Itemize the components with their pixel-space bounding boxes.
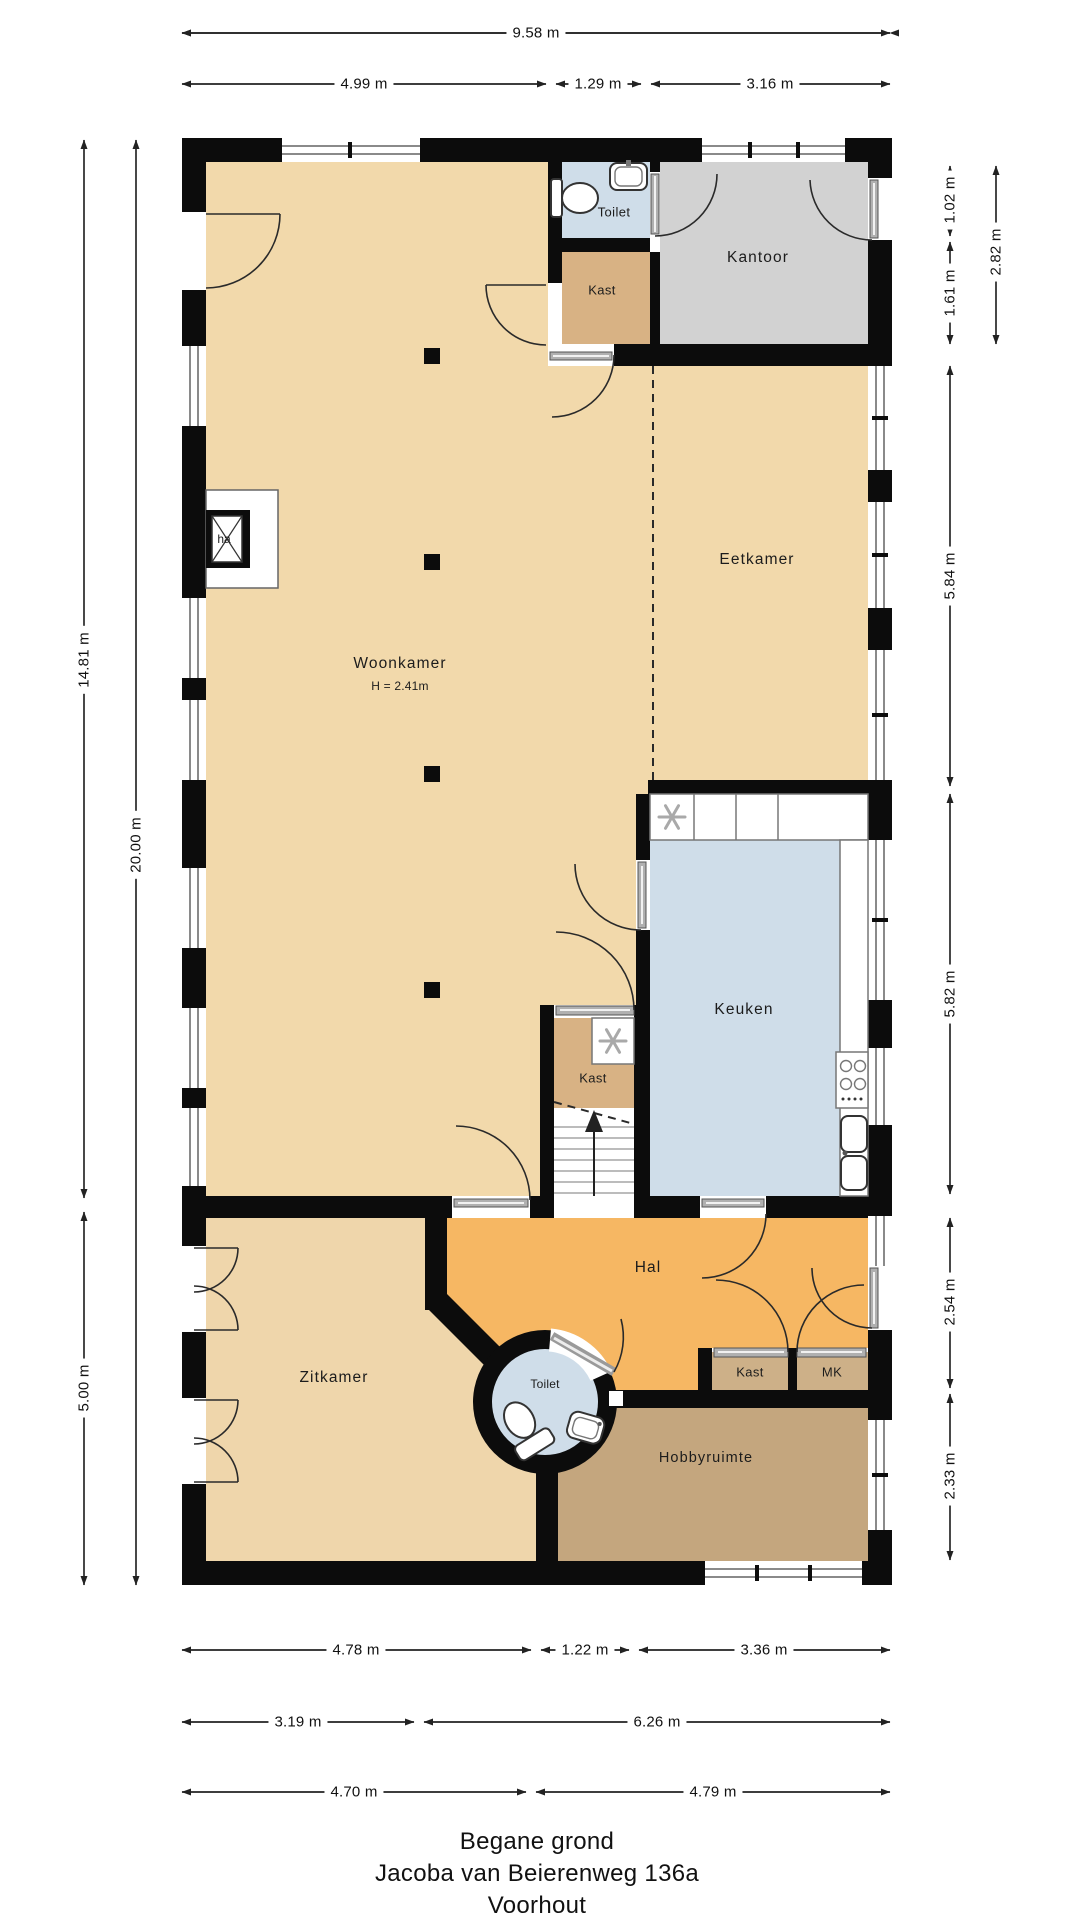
room-label-toilet-top: Toilet bbox=[598, 205, 631, 220]
floorplan-page: Toilet Kast Kantoor Eetkamer Woonkamer H… bbox=[0, 0, 1080, 1920]
window bbox=[184, 598, 204, 678]
window bbox=[184, 346, 204, 426]
dim-right-total-top: 2.82 m bbox=[988, 222, 1005, 281]
window bbox=[282, 140, 420, 160]
window bbox=[870, 502, 890, 608]
window bbox=[702, 140, 845, 160]
dim-bottom-r1-c: 3.36 m bbox=[734, 1642, 793, 1659]
room-label-mk: MK bbox=[822, 1365, 842, 1380]
dim-right-e: 2.54 m bbox=[942, 1272, 959, 1331]
dim-left-total: 20.00 m bbox=[128, 811, 145, 879]
dim-top-c: 3.16 m bbox=[740, 76, 799, 93]
room-label-keuken: Keuken bbox=[714, 1001, 773, 1019]
fireplace-label: ha bbox=[217, 532, 230, 546]
room-label-eetkamer: Eetkamer bbox=[719, 551, 794, 569]
dim-bottom-r3-a: 4.70 m bbox=[324, 1784, 383, 1801]
dim-right-b: 1.61 m bbox=[942, 263, 959, 322]
window bbox=[870, 1048, 890, 1125]
window bbox=[870, 1420, 890, 1530]
dim-right-d: 5.82 m bbox=[942, 964, 959, 1023]
column-post bbox=[424, 766, 440, 782]
dim-right-a: 1.02 m bbox=[942, 170, 959, 229]
window bbox=[705, 1563, 862, 1583]
dim-left-a: 14.81 m bbox=[76, 626, 93, 694]
dim-left-b: 5.00 m bbox=[76, 1358, 93, 1417]
window bbox=[184, 700, 204, 780]
window bbox=[870, 840, 890, 1000]
window bbox=[870, 1216, 890, 1266]
window bbox=[184, 868, 204, 948]
window bbox=[184, 1008, 204, 1088]
dim-bottom-r1-a: 4.78 m bbox=[326, 1642, 385, 1659]
title-address: Jacoba van Beierenweg 136a bbox=[137, 1858, 937, 1890]
dim-right-c: 5.84 m bbox=[942, 546, 959, 605]
freezer-box bbox=[592, 1018, 634, 1064]
dim-bottom-r3-b: 4.79 m bbox=[683, 1784, 742, 1801]
room-label-woonkamer: Woonkamer bbox=[353, 655, 446, 673]
room-kast-top bbox=[562, 252, 650, 344]
dim-top-total: 9.58 m bbox=[506, 25, 565, 42]
dim-top-b: 1.29 m bbox=[568, 76, 627, 93]
column-post bbox=[424, 554, 440, 570]
room-height-note: H = 2.41m bbox=[371, 679, 429, 693]
stove-icon bbox=[836, 1052, 868, 1108]
title-floor: Begane grond bbox=[137, 1826, 937, 1858]
room-label-toilet-round: Toilet bbox=[530, 1377, 559, 1391]
dim-right-f: 2.33 m bbox=[942, 1446, 959, 1505]
room-label-kast-hal: Kast bbox=[736, 1365, 764, 1380]
window bbox=[870, 366, 890, 470]
floorplan-drawing bbox=[0, 0, 1080, 1920]
room-label-hobbyruimte: Hobbyruimte bbox=[659, 1450, 753, 1466]
window bbox=[184, 1108, 204, 1186]
dim-bottom-r1-b: 1.22 m bbox=[555, 1642, 614, 1659]
column-post bbox=[424, 348, 440, 364]
sink-icon bbox=[610, 160, 647, 190]
window bbox=[870, 650, 890, 780]
room-label-kast-top: Kast bbox=[588, 283, 616, 298]
room-label-kantoor: Kantoor bbox=[727, 249, 789, 267]
plan-title: Begane grond Jacoba van Beierenweg 136a … bbox=[137, 1826, 937, 1920]
room-label-kast-mid: Kast bbox=[579, 1071, 607, 1086]
dim-bottom-r2-b: 6.26 m bbox=[627, 1714, 686, 1731]
title-city: Voorhout bbox=[137, 1890, 937, 1920]
room-label-zitkamer: Zitkamer bbox=[299, 1369, 368, 1387]
dim-top-a: 4.99 m bbox=[334, 76, 393, 93]
room-label-hal: Hal bbox=[635, 1259, 662, 1277]
column-post bbox=[424, 982, 440, 998]
dim-bottom-r2-a: 3.19 m bbox=[268, 1714, 327, 1731]
